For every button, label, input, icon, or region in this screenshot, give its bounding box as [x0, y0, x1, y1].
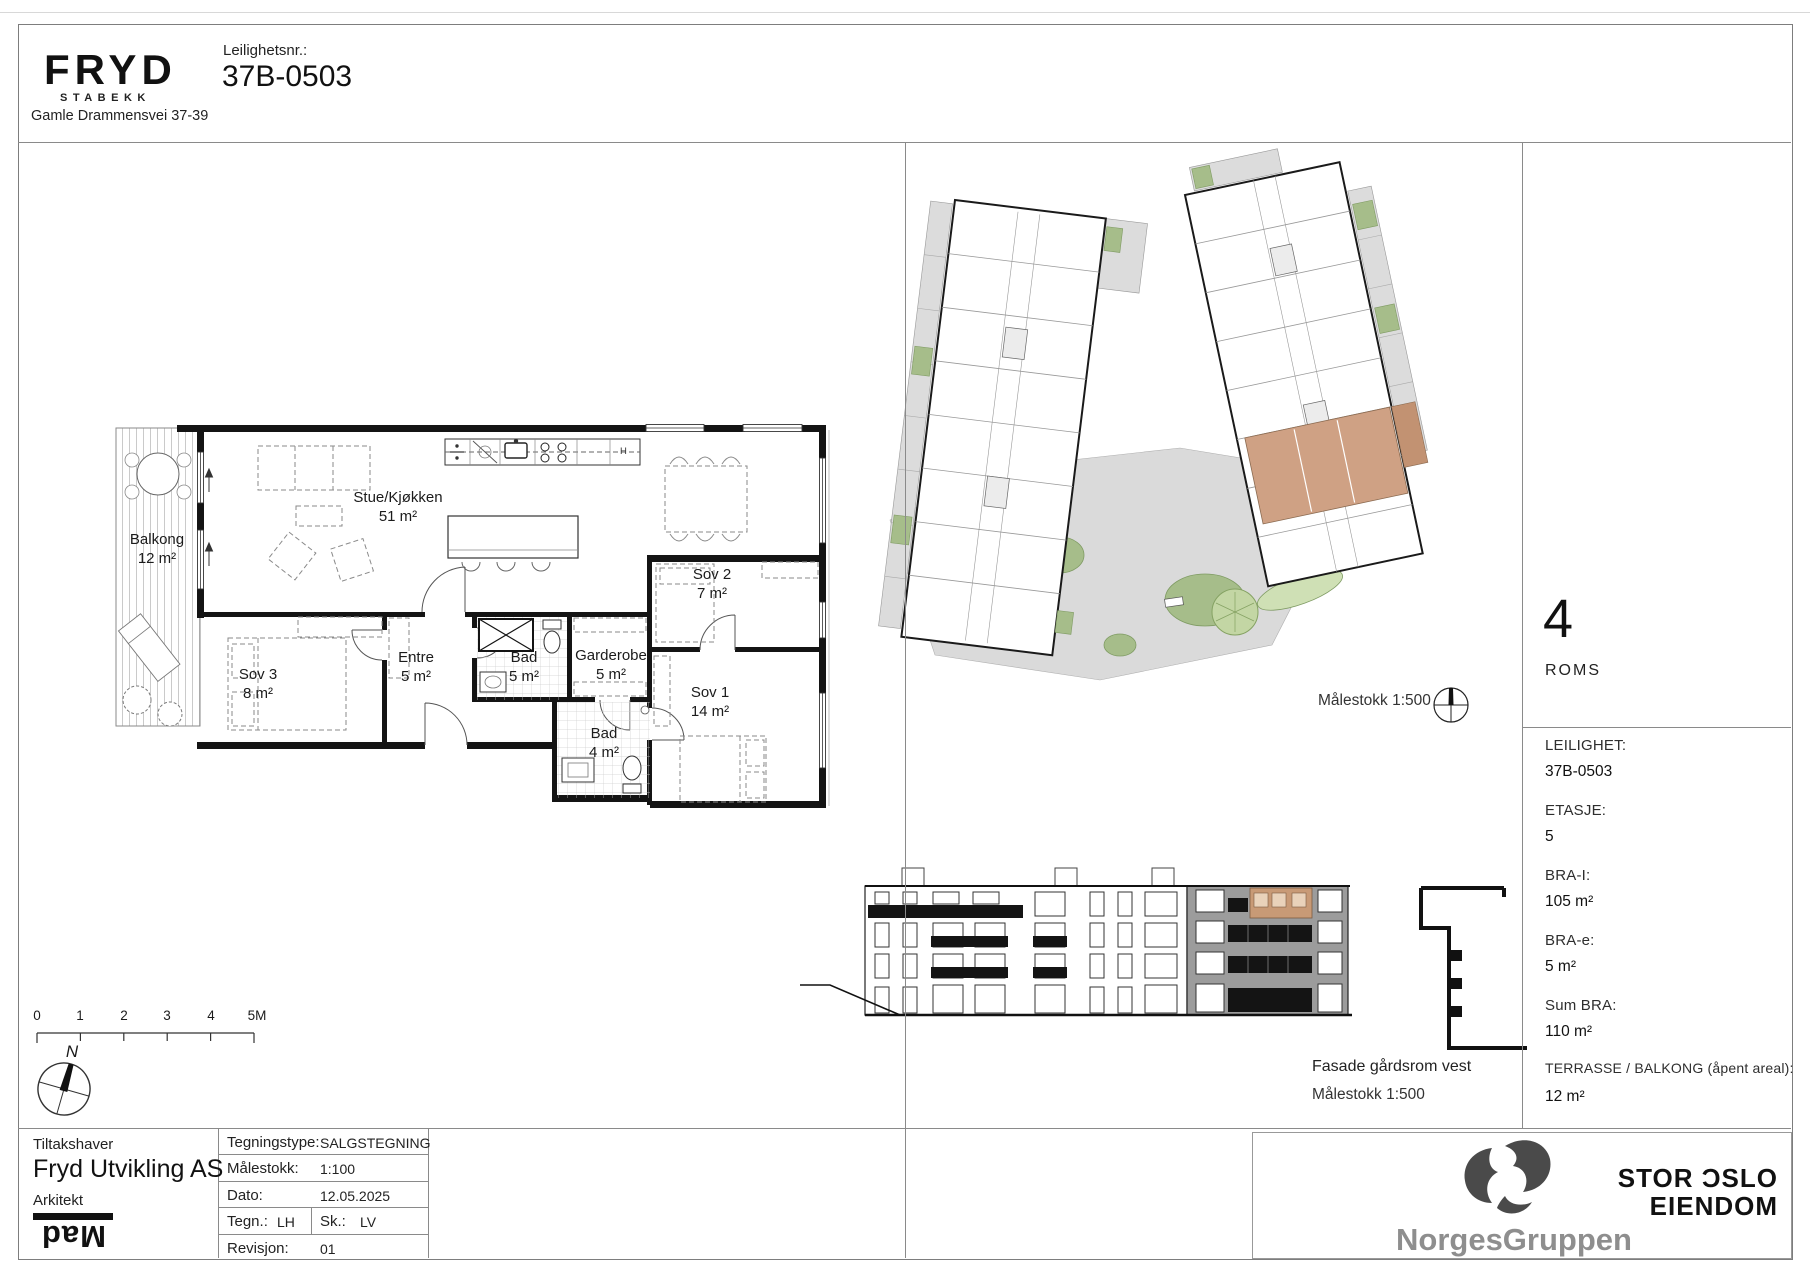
- scalebar-4: 4: [207, 1008, 215, 1023]
- row5-value: 01: [320, 1241, 336, 1257]
- rooms-count: 4: [1543, 588, 1573, 650]
- detail-label-etasje: ETASJE:: [1545, 802, 1606, 819]
- room-label-garderobe: Garderobe5 m²: [575, 646, 647, 684]
- row1-value: SALGSTEGNING: [320, 1135, 430, 1151]
- detail-value-etasje: 5: [1545, 828, 1554, 846]
- sheet-top-rule: [0, 12, 1810, 13]
- row2-label: Målestokk:: [227, 1160, 299, 1177]
- panel-divider-right: [1522, 142, 1523, 1128]
- scalebar-2: 2: [120, 1008, 128, 1023]
- brand-logo: FRYD: [44, 46, 177, 94]
- norgesgruppen-logo-text: NorgesGruppen: [1396, 1222, 1632, 1258]
- kitchen-hood-label: H: [620, 446, 627, 457]
- table-row-line-2: [218, 1181, 428, 1182]
- detail-label-bra-i: BRA-I:: [1545, 867, 1590, 884]
- owner-label: Tiltakshaver: [33, 1136, 113, 1153]
- rooms-count-label: ROMS: [1545, 662, 1601, 680]
- brand-sub-label: STABEKK: [60, 92, 151, 104]
- table-row-line-3: [218, 1207, 428, 1208]
- detail-value-leilighet: 37B-0503: [1545, 763, 1612, 781]
- row1-label: Tegningstype:: [227, 1134, 320, 1151]
- detail-label-sum-bra: Sum BRA:: [1545, 997, 1617, 1014]
- row4-value: LH: [277, 1214, 295, 1230]
- detail-label-leilighet: LEILIGHET:: [1545, 737, 1626, 754]
- titleblock-col-divider: [218, 1128, 219, 1258]
- detail-label-bra-e: BRA-e:: [1545, 932, 1595, 949]
- scalebar-3: 3: [163, 1008, 171, 1023]
- row3-value: 12.05.2025: [320, 1188, 390, 1204]
- row4-label2: Sk.:: [320, 1213, 346, 1230]
- architect-logo-text: Mad: [41, 1218, 106, 1254]
- apartment-number: 37B-0503: [222, 60, 352, 94]
- room-label-balkong: Balkong12 m²: [130, 530, 184, 568]
- room-label-bad4: Bad4 m²: [589, 724, 619, 762]
- storoslo-line2: EIENDOM: [1612, 1192, 1778, 1220]
- detail-value-bra-i: 105 m²: [1545, 893, 1593, 911]
- scalebar-1: 1: [76, 1008, 84, 1023]
- facade-scale-label: Målestokk 1:500: [1312, 1086, 1425, 1104]
- room-label-sov1: Sov 114 m²: [691, 683, 729, 721]
- scalebar-0: 0: [33, 1008, 41, 1023]
- detail-value-bra-e: 5 m²: [1545, 958, 1576, 976]
- room-label-sov3: Sov 38 m²: [239, 665, 277, 703]
- row4-value2: LV: [360, 1214, 376, 1230]
- row2-value: 1:100: [320, 1161, 355, 1177]
- storoslo-logo: STOR ƆSLO EIENDOM: [1612, 1164, 1778, 1220]
- table-row-line-4: [218, 1234, 428, 1235]
- detail-value-sum-bra: 110 m²: [1545, 1023, 1592, 1041]
- row5-label: Revisjon:: [227, 1240, 289, 1257]
- storoslo-line1: STOR ƆSLO: [1612, 1164, 1778, 1192]
- drawing-sheet: FRYD STABEKK Gamle Drammensvei 37-39 Lei…: [0, 0, 1810, 1280]
- facade-caption: Fasade gårdsrom vest: [1312, 1058, 1471, 1076]
- detail-value-terrasse: 12 m²: [1545, 1088, 1585, 1106]
- room-label-stue-kjokken: Stue/Kjøkken51 m²: [353, 488, 442, 526]
- north-label: N: [66, 1042, 78, 1062]
- detail-label-terrasse: TERRASSE / BALKONG (åpent areal):: [1545, 1060, 1794, 1076]
- room-label-bad5: Bad5 m²: [509, 648, 539, 686]
- table-row-line-1: [218, 1154, 428, 1155]
- architect-logo: Mad: [33, 1218, 113, 1254]
- scalebar-5m: 5M: [248, 1008, 267, 1023]
- apartment-number-label: Leilighetsnr.:: [223, 42, 307, 59]
- table-row4-mid-divider: [311, 1207, 312, 1234]
- panel-divider-left: [905, 142, 906, 1258]
- sidebar-divider: [1522, 727, 1791, 728]
- siteplan-scale-label: Målestokk 1:500: [1318, 692, 1431, 710]
- room-label-sov2: Sov 27 m²: [693, 565, 731, 603]
- project-address: Gamle Drammensvei 37-39: [31, 108, 208, 124]
- row3-label: Dato:: [227, 1187, 263, 1204]
- row4-label: Tegn.:: [227, 1213, 268, 1230]
- owner-name: Fryd Utvikling AS: [33, 1155, 223, 1184]
- titleblock-top-divider: [18, 1128, 1791, 1129]
- architect-label: Arkitekt: [33, 1192, 83, 1209]
- room-label-entre: Entre5 m²: [398, 648, 434, 686]
